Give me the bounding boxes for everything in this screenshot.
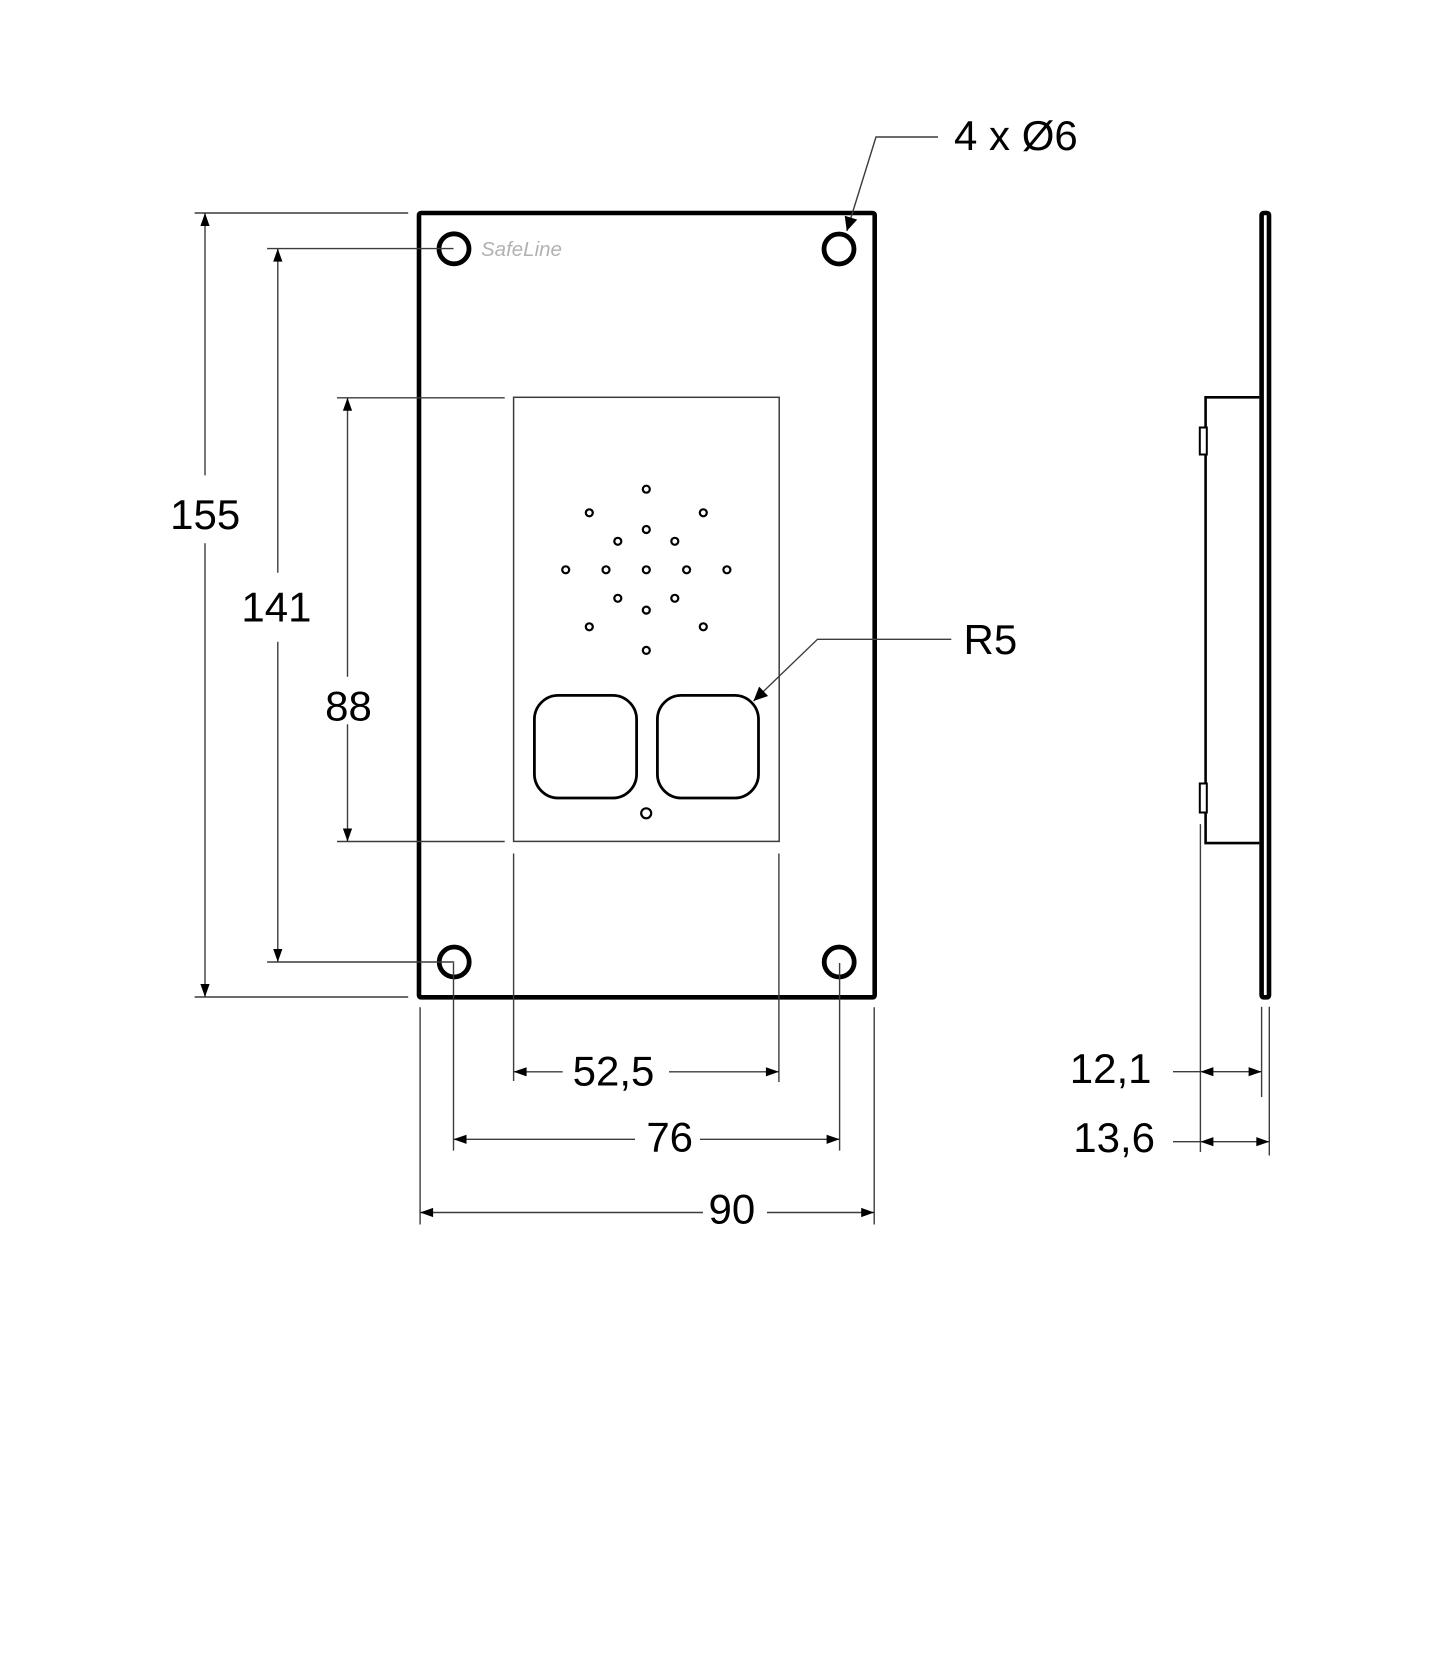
svg-text:13,6: 13,6: [1073, 1114, 1155, 1161]
svg-text:155: 155: [170, 491, 240, 538]
svg-text:12,1: 12,1: [1070, 1045, 1152, 1092]
svg-text:76: 76: [646, 1114, 693, 1161]
svg-text:R5: R5: [964, 616, 1018, 663]
svg-text:88: 88: [325, 682, 372, 729]
svg-text:141: 141: [241, 584, 311, 631]
svg-text:4 x Ø6: 4 x Ø6: [954, 112, 1078, 159]
svg-text:52,5: 52,5: [573, 1048, 655, 1095]
svg-text:SafeLine: SafeLine: [481, 238, 562, 261]
svg-text:90: 90: [709, 1186, 756, 1233]
